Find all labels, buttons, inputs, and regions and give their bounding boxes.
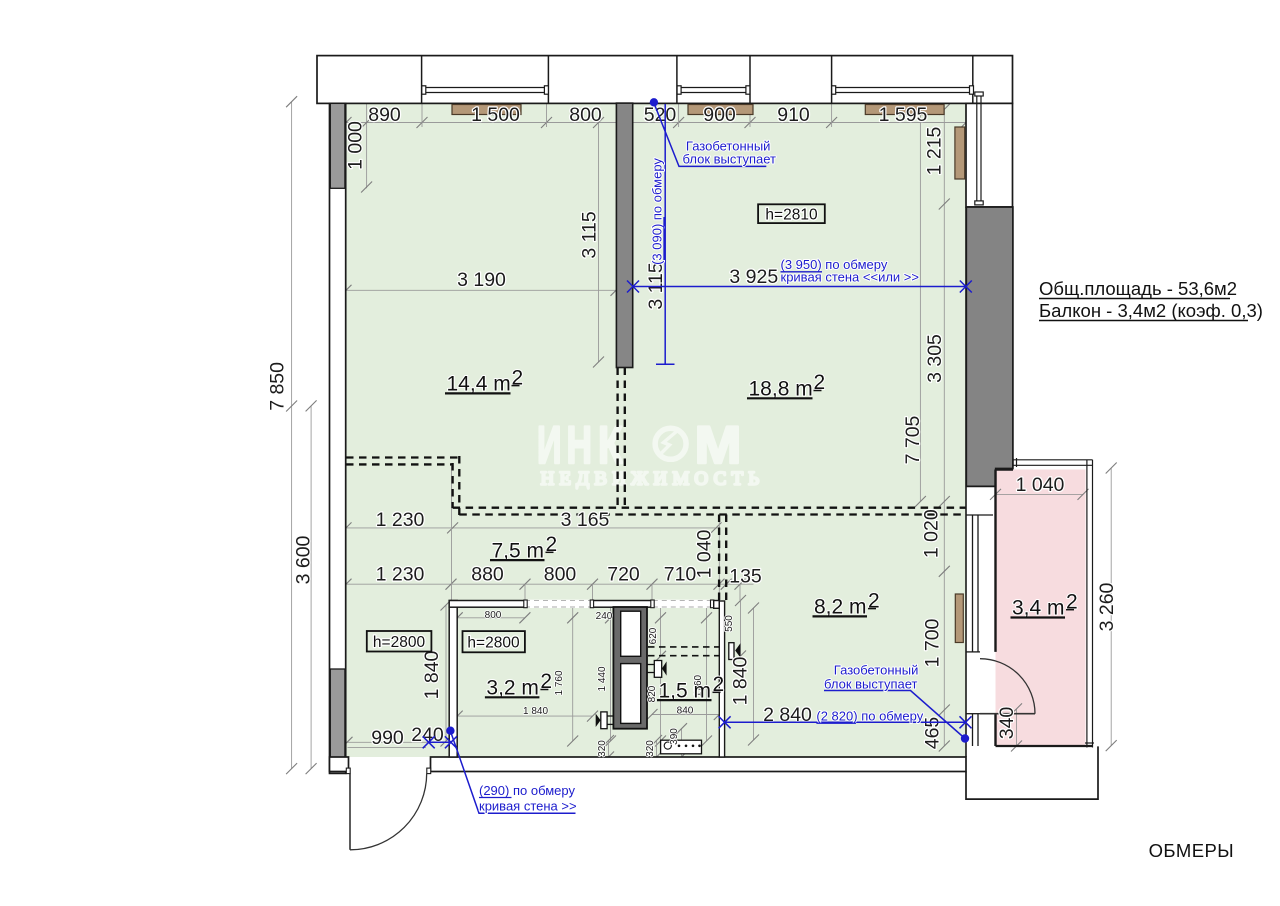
svg-text:блок выступает: блок выступает xyxy=(683,152,777,167)
svg-text:18,8 m: 18,8 m xyxy=(749,378,813,401)
svg-text:820: 820 xyxy=(647,685,658,702)
svg-text:h=2800: h=2800 xyxy=(373,634,426,651)
svg-text:1 500: 1 500 xyxy=(471,104,520,126)
svg-text:7 850: 7 850 xyxy=(267,362,289,411)
svg-text:390: 390 xyxy=(669,728,680,745)
svg-text:ОБМЕРЫ: ОБМЕРЫ xyxy=(1149,840,1234,861)
svg-text:3,4 m: 3,4 m xyxy=(1012,597,1065,620)
svg-text:3 260: 3 260 xyxy=(1096,582,1118,631)
svg-text:800: 800 xyxy=(544,564,577,586)
svg-text:550: 550 xyxy=(724,615,735,632)
svg-text:1 595: 1 595 xyxy=(879,104,928,126)
svg-text:1 215: 1 215 xyxy=(924,126,946,175)
svg-text:Балкон - 3,4м2 (коэф. 0,3): Балкон - 3,4м2 (коэф. 0,3) xyxy=(1039,300,1263,321)
svg-text:3 115: 3 115 xyxy=(579,211,601,259)
svg-text:Газобетонный: Газобетонный xyxy=(834,663,919,678)
svg-text:3 925: 3 925 xyxy=(729,266,778,288)
svg-text:880: 880 xyxy=(471,564,504,586)
svg-text:7 705: 7 705 xyxy=(902,415,924,464)
svg-text:520: 520 xyxy=(644,104,677,126)
svg-text:h=2800: h=2800 xyxy=(467,635,520,652)
svg-text:1 230: 1 230 xyxy=(376,564,425,586)
svg-text:3 600: 3 600 xyxy=(293,535,315,584)
svg-text:1 040: 1 040 xyxy=(694,529,716,578)
svg-text:900: 900 xyxy=(703,104,736,126)
svg-text:800: 800 xyxy=(485,610,502,621)
svg-text:890: 890 xyxy=(368,104,401,126)
svg-text:710: 710 xyxy=(664,564,697,586)
svg-text:340: 340 xyxy=(996,707,1018,740)
svg-text:1 840: 1 840 xyxy=(421,650,443,699)
svg-text:К: К xyxy=(598,416,623,475)
svg-text:800: 800 xyxy=(569,104,602,126)
svg-text:М: М xyxy=(695,416,742,475)
svg-text:240: 240 xyxy=(596,611,613,622)
svg-text:1 700: 1 700 xyxy=(922,618,944,667)
svg-text:И: И xyxy=(537,416,562,475)
svg-text:блок выступает: блок выступает xyxy=(824,676,918,691)
svg-text:910: 910 xyxy=(777,104,810,126)
svg-text:1 840: 1 840 xyxy=(730,656,752,705)
svg-text:135: 135 xyxy=(729,566,762,588)
svg-text:3,2 m: 3,2 m xyxy=(486,677,539,700)
svg-text:1 230: 1 230 xyxy=(376,509,425,531)
svg-text:465: 465 xyxy=(922,717,944,750)
svg-text:(290) по обмеру: (290) по обмеру xyxy=(479,783,575,798)
svg-text:990: 990 xyxy=(371,727,404,749)
svg-text:840: 840 xyxy=(677,706,694,717)
svg-text:1 760: 1 760 xyxy=(554,670,565,695)
svg-text:1,5 m: 1,5 m xyxy=(659,679,712,702)
svg-text:320: 320 xyxy=(597,740,608,757)
svg-text:кривая стена >>: кривая стена >> xyxy=(479,799,577,814)
svg-text:620: 620 xyxy=(648,627,659,644)
svg-text:1 020: 1 020 xyxy=(921,509,943,558)
svg-text:14,4 m: 14,4 m xyxy=(447,373,511,396)
svg-text:НЕДВИЖИМОСТЬ: НЕДВИЖИМОСТЬ xyxy=(541,469,765,490)
svg-text:3 165: 3 165 xyxy=(561,509,610,531)
svg-text:8,2 m: 8,2 m xyxy=(814,596,867,619)
svg-text:720: 720 xyxy=(607,564,640,586)
svg-text:Н: Н xyxy=(567,416,593,475)
svg-text:(2 820) по обмеру: (2 820) по обмеру xyxy=(816,709,923,724)
svg-text:1 000: 1 000 xyxy=(345,121,367,170)
svg-text:3 305: 3 305 xyxy=(924,334,946,383)
svg-text:320: 320 xyxy=(645,740,656,757)
svg-text:1 040: 1 040 xyxy=(1016,474,1065,496)
svg-text:3 190: 3 190 xyxy=(457,269,506,291)
svg-text:7,5 m: 7,5 m xyxy=(492,539,545,562)
svg-text:кривая стена <<или >>: кривая стена <<или >> xyxy=(781,270,919,285)
svg-text:Общ.площадь - 53,6м2: Общ.площадь - 53,6м2 xyxy=(1039,278,1237,299)
svg-text:1 840: 1 840 xyxy=(523,706,548,717)
svg-text:1 440: 1 440 xyxy=(597,666,608,691)
svg-text:h=2810: h=2810 xyxy=(765,207,818,224)
svg-text:(3 090) по обмеру: (3 090) по обмеру xyxy=(650,158,665,265)
